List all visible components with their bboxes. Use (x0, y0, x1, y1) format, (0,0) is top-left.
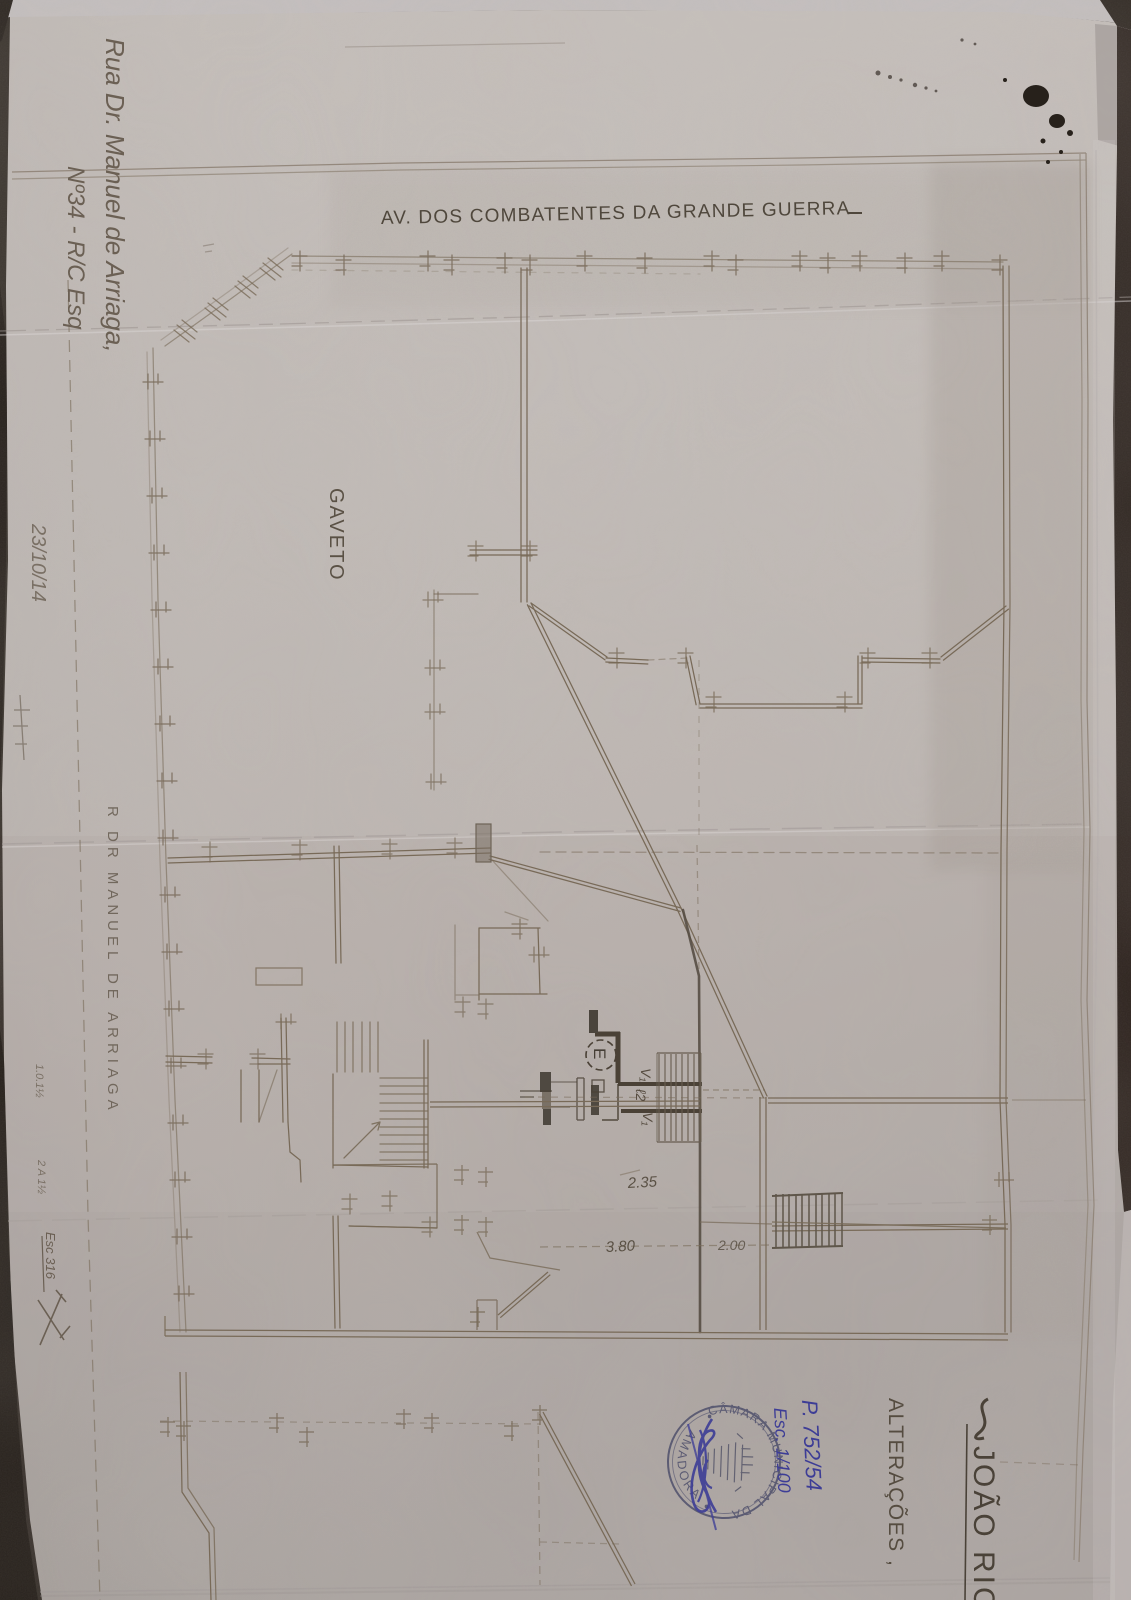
svg-text:ALTERAÇÕES ,: ALTERAÇÕES , (884, 1398, 908, 1567)
svg-text:ℓ2: ℓ2 (633, 1088, 649, 1102)
svg-text:Rua Dr. Manuel de Arriaga,: Rua Dr. Manuel de Arriaga, (100, 38, 130, 353)
svg-text:JOÃO RIC: JOÃO RIC (967, 1446, 1001, 1600)
svg-text:1.0.1½: 1.0.1½ (33, 1064, 45, 1098)
svg-text:2.35: 2.35 (626, 1173, 658, 1192)
svg-text:2.00: 2.00 (717, 1237, 745, 1253)
svg-text:GAVETO: GAVETO (325, 488, 347, 582)
svg-text:V₁: V₁ (638, 1068, 654, 1082)
svg-text:Esc 316: Esc 316 (43, 1232, 58, 1280)
svg-text:3.80: 3.80 (605, 1237, 636, 1256)
svg-text:V₁: V₁ (640, 1112, 656, 1126)
svg-text:R DR MANUEL DE ARRIAGA: R DR MANUEL DE ARRIAGA (104, 806, 121, 1115)
svg-text:E: E (590, 1048, 609, 1059)
svg-text:23/10/14: 23/10/14 (27, 523, 49, 602)
svg-text:P. 752/54: P. 752/54 (797, 1399, 827, 1492)
svg-text:2 A 1½: 2 A 1½ (35, 1159, 47, 1194)
svg-text:Nº34 - R/C Esq: Nº34 - R/C Esq (62, 166, 89, 330)
